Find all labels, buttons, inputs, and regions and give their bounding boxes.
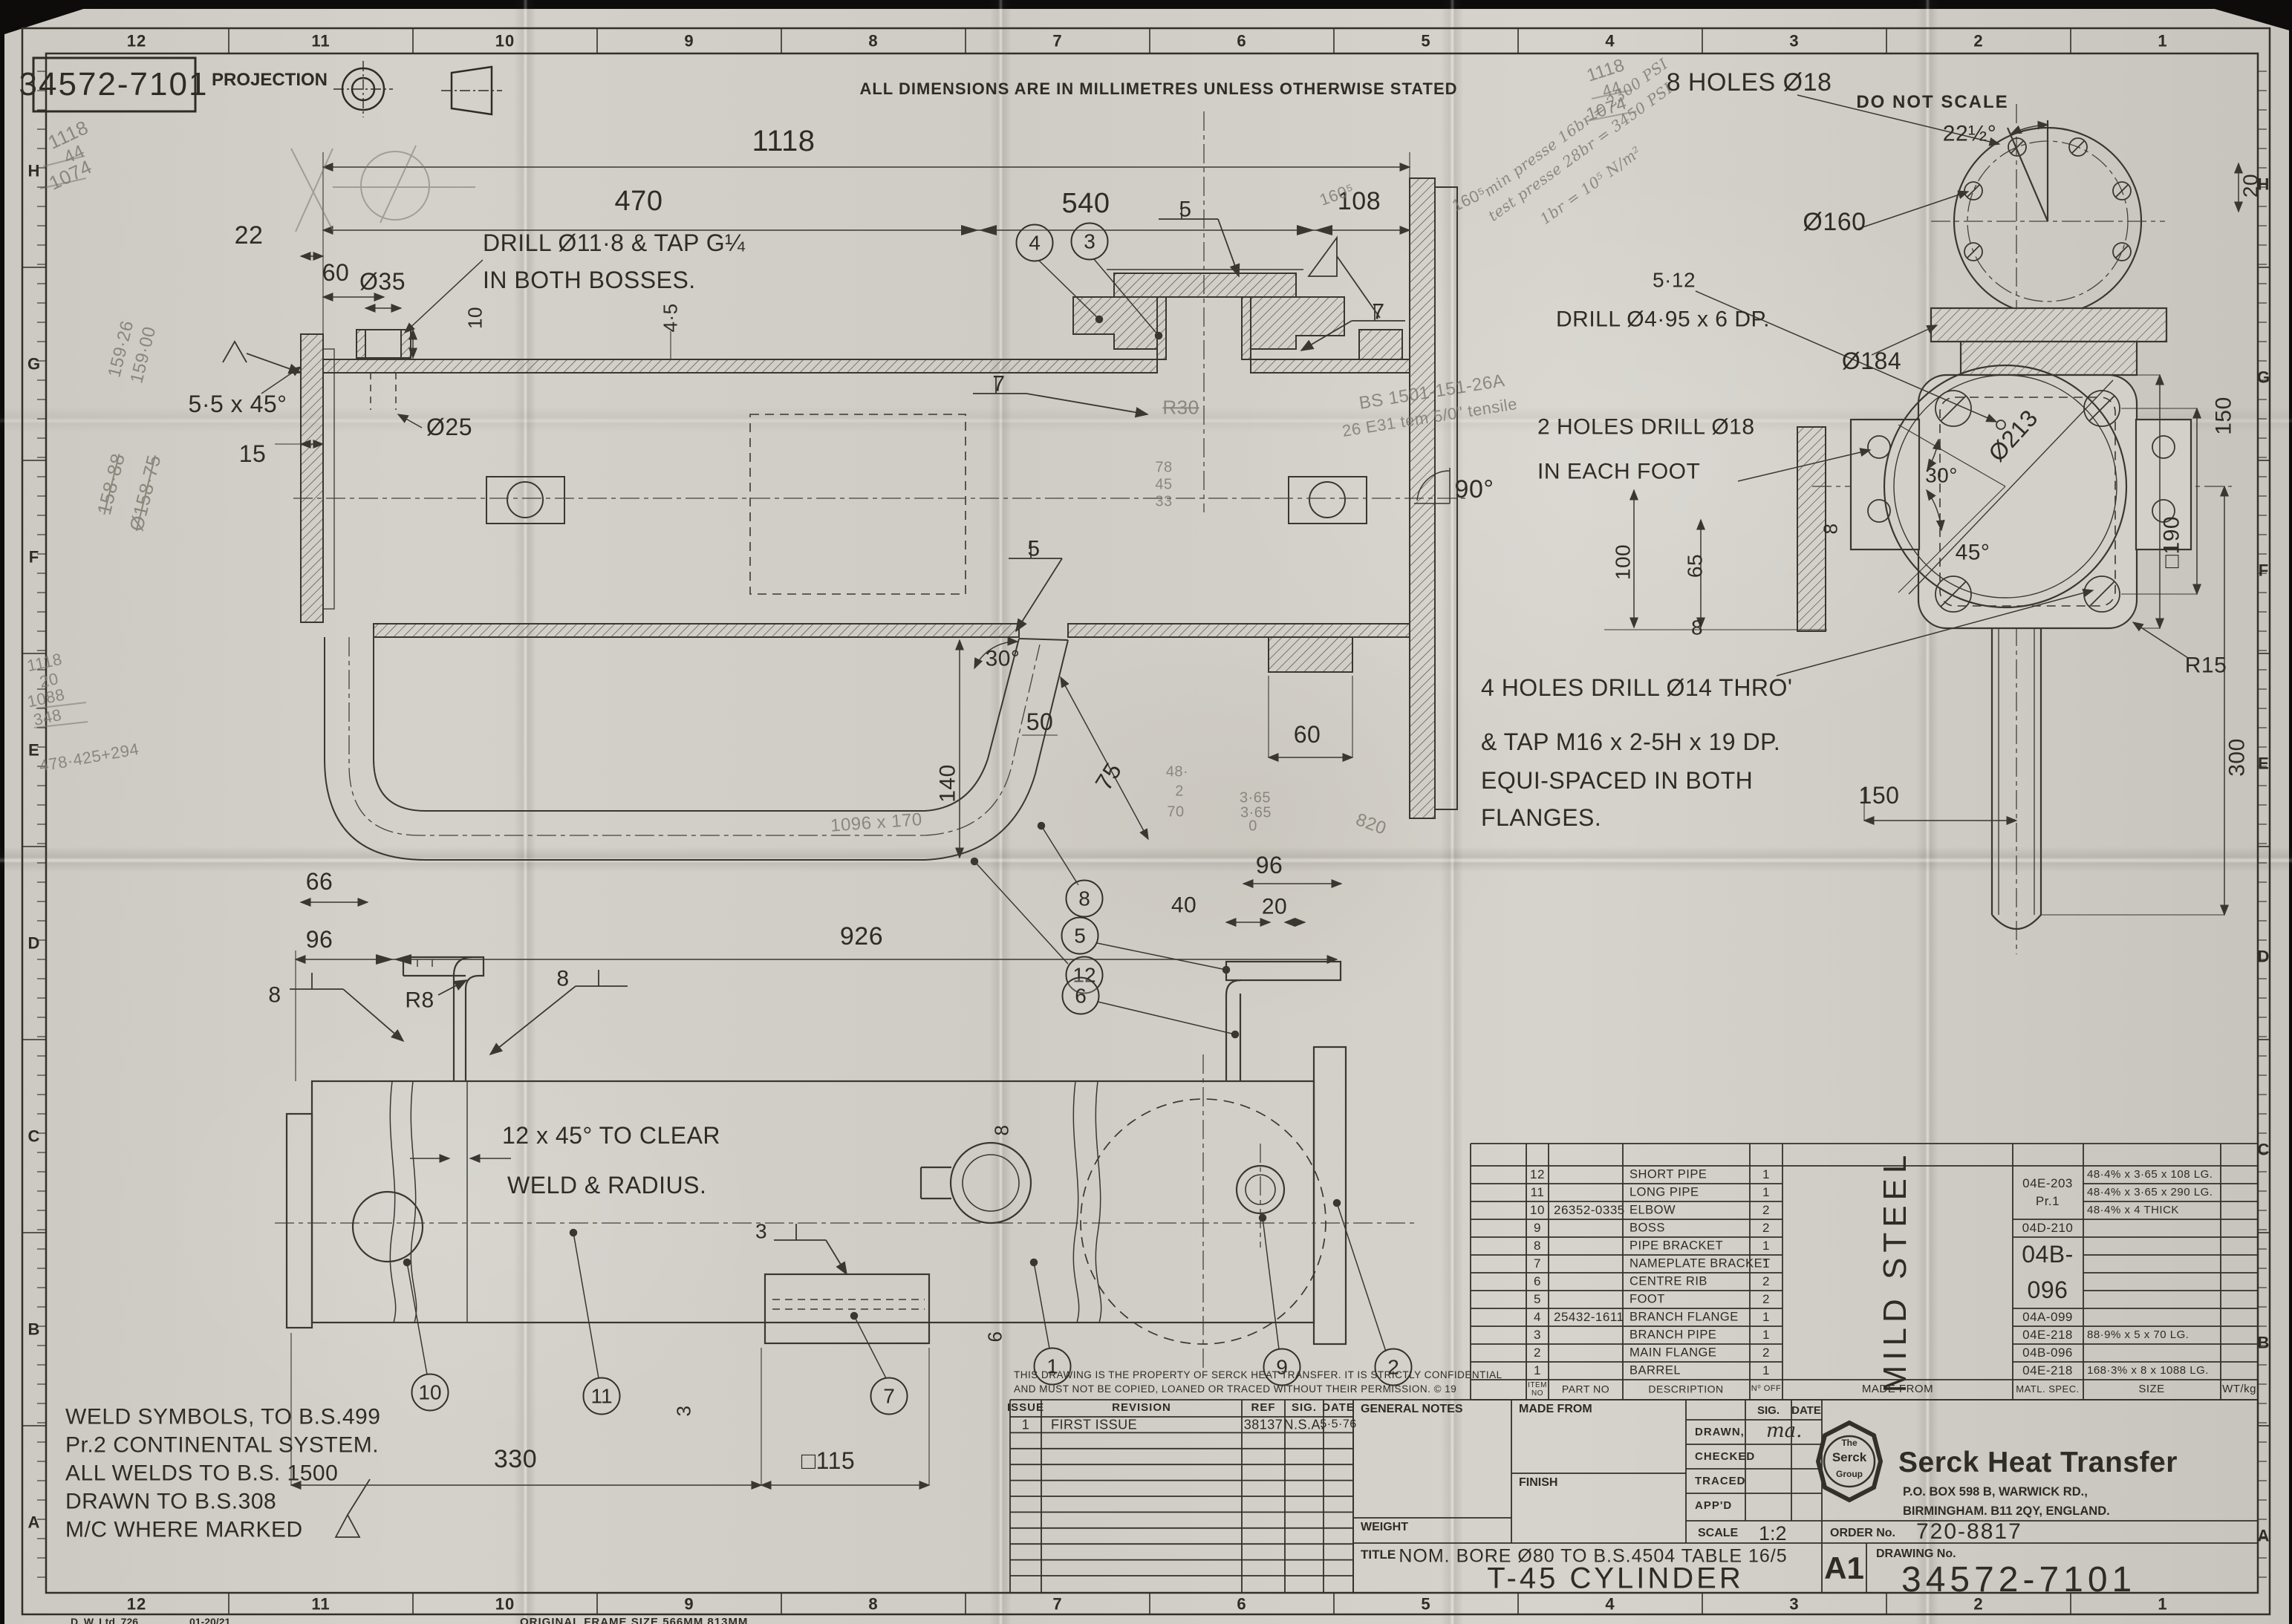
parts-description: BRANCH PIPE — [1630, 1328, 1716, 1341]
parts-item-no: 8 — [1534, 1239, 1541, 1253]
grid-row-label-left: D — [28, 934, 41, 951]
parts-description: BRANCH FLANGE — [1630, 1311, 1739, 1323]
parts-size: 88·9% x 5 x 70 LG. — [2087, 1329, 2189, 1341]
item-balloon-7: 7 — [870, 1377, 908, 1415]
parts-matl-spec: 096 — [2028, 1278, 2068, 1303]
parts-header-off: N⁰ OFF — [1751, 1385, 1781, 1394]
dimension-text: 10 — [465, 307, 485, 329]
dimension-text: & TAP M16 x 2-5H x 19 DP. — [1481, 730, 1780, 755]
weld-note-line: DRAWN TO B.S.308 — [65, 1490, 276, 1513]
dimension-text: 65 — [1684, 554, 1705, 578]
grid-row-label-left: G — [27, 355, 41, 372]
grid-col-label-bottom: 10 — [495, 1595, 515, 1612]
dimension-text: 8 — [1691, 616, 1703, 638]
order-label: ORDER No. — [1830, 1527, 1895, 1540]
dimension-text: 22 — [235, 223, 264, 250]
item-balloon-8: 8 — [1066, 880, 1104, 918]
grid-col-label-bottom: 5 — [1421, 1595, 1430, 1612]
dimension-text: WELD & RADIUS. — [507, 1173, 706, 1199]
grid-col-label-top: 11 — [311, 32, 330, 49]
item-balloon-6: 6 — [1062, 977, 1100, 1015]
parts-item-no: 11 — [1531, 1186, 1545, 1199]
parts-matl-spec: 04E-218 — [2022, 1364, 2073, 1377]
parts-description: NAMEPLATE BRACKET — [1630, 1257, 1771, 1270]
grid-col-label-bottom: 9 — [684, 1595, 694, 1612]
parts-header-part: PART NO — [1562, 1384, 1609, 1395]
footer-maker: D. W. Ltd. 726 — [71, 1616, 138, 1624]
revision-text: FIRST ISSUE — [1051, 1418, 1137, 1432]
parts-description: FOOT — [1630, 1293, 1665, 1305]
revision-header: DATE — [1322, 1402, 1355, 1414]
grid-col-label-bottom: 12 — [127, 1595, 146, 1612]
revision-header: SIG. — [1292, 1402, 1317, 1414]
grid-col-label-bottom: 6 — [1237, 1595, 1246, 1612]
grid-col-label-bottom: 7 — [1052, 1595, 1062, 1612]
revision-issue: 1 — [1022, 1418, 1030, 1432]
dimension-text: 7 — [992, 372, 1005, 396]
grid-col-label-bottom: 4 — [1605, 1595, 1615, 1612]
pencil-note: 3·65 — [1240, 791, 1271, 806]
dimension-text: 150 — [2212, 397, 2236, 435]
drawing-number-top: 34572-7101 — [19, 66, 209, 103]
parts-description: BOSS — [1630, 1222, 1665, 1234]
revision-header: ISSUE — [1007, 1402, 1044, 1414]
parts-no-off: 2 — [1762, 1293, 1770, 1306]
item-balloon-4: 4 — [1016, 224, 1054, 262]
dimension-text: 4·5 — [660, 303, 680, 332]
sig-row-label: APP'D — [1695, 1500, 1732, 1512]
grid-row-label-right: B — [2258, 1334, 2270, 1351]
dimension-text: Ø25 — [426, 415, 472, 440]
made-from-label: MADE FROM — [1519, 1403, 1592, 1416]
parts-size: 48·4% x 3·65 x 290 LG. — [2087, 1187, 2213, 1199]
grid-row-label-left: C — [28, 1127, 41, 1144]
grid-row-label-left: B — [28, 1320, 41, 1337]
parts-matl-spec: 04A-099 — [2022, 1311, 2073, 1324]
dimension-text: 60 — [1294, 723, 1321, 748]
parts-item-no: 1 — [1534, 1364, 1541, 1377]
parts-matl-spec: 04B-096 — [2022, 1346, 2073, 1360]
dimension-text: 926 — [840, 924, 883, 950]
weld-note-line: ALL WELDS TO B.S. 1500 — [65, 1461, 338, 1485]
dimension-text: Ø184 — [1842, 349, 1901, 374]
parts-matl-spec: 04D-210 — [2022, 1222, 2074, 1235]
parts-header-made-from: MADE FROM — [1862, 1383, 1933, 1395]
parts-description: CENTRE RIB — [1630, 1275, 1707, 1288]
dimension-text: R8 — [405, 988, 434, 1012]
dimension-text: 8 HOLES Ø18 — [1667, 70, 1832, 97]
dimension-text: 3 — [674, 1406, 694, 1417]
dimension-text: 40 — [1171, 893, 1197, 917]
dimension-text: 5·5 x 45° — [189, 392, 287, 417]
weld-note-line: M/C WHERE MARKED — [65, 1518, 303, 1542]
parts-no-off: 1 — [1762, 1239, 1770, 1253]
revision-date: 5·5·76 — [1320, 1419, 1356, 1432]
sig-row-label: DRAWN, — [1695, 1426, 1745, 1438]
logo-text-group: Group — [1836, 1469, 1863, 1479]
grid-col-label-top: 2 — [1973, 32, 1983, 49]
projection-label: PROJECTION — [212, 70, 328, 91]
parts-matl-spec: 04E-203 — [2022, 1177, 2073, 1190]
pencil-note: 70 — [1167, 805, 1184, 821]
dimension-text: 15 — [239, 442, 267, 467]
grid-col-label-bottom: 3 — [1789, 1595, 1799, 1612]
parts-matl-spec: Pr.1 — [2036, 1195, 2060, 1208]
dimension-text: 5 — [1027, 537, 1040, 561]
parts-no-off: 1 — [1762, 1311, 1770, 1324]
company-address2: BIRMINGHAM. B11 2QY, ENGLAND. — [1903, 1504, 2110, 1519]
do-not-scale-note: DO NOT SCALE — [1856, 92, 2008, 113]
pencil-note: 33 — [1155, 495, 1172, 510]
dimension-text: 96 — [306, 927, 333, 953]
item-balloon-3: 3 — [1071, 223, 1109, 261]
dimension-text: □115 — [801, 1449, 855, 1474]
parts-description: ELBOW — [1630, 1204, 1676, 1216]
drawing-sheet-scan: 34572-7101 PROJECTION ALL DIMENSIONS ARE… — [0, 0, 2292, 1624]
parts-description: MAIN FLANGE — [1630, 1346, 1716, 1359]
parts-item-no: 2 — [1534, 1346, 1541, 1360]
made-from-material: MILD STEEL — [1878, 1150, 1912, 1393]
parts-item-no: 12 — [1530, 1168, 1545, 1181]
dimension-text: Ø160 — [1803, 209, 1866, 236]
dimension-text: IN EACH FOOT — [1537, 460, 1700, 483]
scale-label: SCALE — [1698, 1527, 1738, 1540]
grid-col-label-bottom: 8 — [868, 1595, 878, 1612]
order-number: 720-8817 — [1916, 1519, 2022, 1545]
parts-item-no: 5 — [1534, 1293, 1541, 1306]
parts-no-off: 1 — [1762, 1257, 1770, 1271]
revision-header: REVISION — [1112, 1402, 1171, 1414]
dimension-text: 8 — [556, 967, 569, 991]
sheet-size-code: A1 — [1824, 1550, 1864, 1586]
dimension-text: 96 — [1256, 853, 1283, 878]
footer-frame-size: ORIGINAL FRAME SIZE 566MM 813MM — [520, 1616, 748, 1624]
grid-col-label-top: 7 — [1052, 32, 1062, 49]
dimension-text: Ø35 — [359, 270, 406, 295]
parts-header-description: DESCRIPTION — [1648, 1384, 1723, 1395]
dimension-text: 300 — [2225, 738, 2249, 777]
dimension-text: 5·12 — [1653, 269, 1696, 290]
pencil-note: 0 — [1248, 819, 1257, 835]
parts-description: SHORT PIPE — [1630, 1168, 1707, 1181]
dimension-text: 540 — [1062, 189, 1110, 219]
parts-item-no: 3 — [1534, 1328, 1541, 1342]
item-balloon-5: 5 — [1061, 917, 1099, 955]
dimension-text: 6 — [985, 1331, 1005, 1343]
grid-row-label-left: A — [28, 1513, 41, 1530]
item-balloon-11: 11 — [583, 1377, 621, 1415]
title-label: TITLE — [1361, 1548, 1396, 1562]
parts-part-no: 26352-0335 — [1554, 1204, 1625, 1217]
parts-item-no: 7 — [1534, 1257, 1541, 1271]
title-line2: T-45 CYLINDER — [1487, 1562, 1743, 1596]
dimension-text: DRILL Ø4·95 x 6 DP. — [1556, 307, 1770, 331]
drawn-signature: ma. — [1766, 1420, 1802, 1442]
dimension-text: 150 — [1859, 783, 1900, 809]
parts-matl-spec: 04B- — [2022, 1242, 2074, 1268]
dimension-text: DRILL Ø11·8 & TAP G¼ — [483, 231, 745, 256]
dimension-text: 4 HOLES DRILL Ø14 THRO' — [1481, 676, 1793, 701]
company-address1: P.O. BOX 598 B, WARWICK RD., — [1903, 1485, 2088, 1499]
dimension-text: IN BOTH BOSSES. — [483, 268, 696, 293]
parts-size: 48·4% x 3·65 x 108 LG. — [2087, 1169, 2213, 1181]
weld-note-line: Pr.2 CONTINENTAL SYSTEM. — [65, 1433, 379, 1457]
parts-no-off: 1 — [1762, 1364, 1770, 1377]
parts-matl-spec: 04E-218 — [2022, 1328, 2073, 1342]
grid-col-label-bottom: 1 — [2158, 1595, 2167, 1612]
dimension-text: EQUI-SPACED IN BOTH — [1481, 769, 1753, 794]
general-notes-label: GENERAL NOTES — [1361, 1403, 1463, 1416]
parts-item-no: 6 — [1534, 1275, 1541, 1288]
dimension-text: 8 — [992, 1125, 1012, 1136]
dimension-text: 470 — [615, 187, 663, 217]
parts-header-wt: WT/kg — [2222, 1383, 2256, 1395]
dimension-text: 30° — [1925, 464, 1958, 486]
dimension-text: 8 — [1820, 524, 1840, 535]
grid-col-label-top: 8 — [868, 32, 878, 49]
grid-row-label-right: D — [2258, 948, 2270, 965]
grid-col-label-bottom: 11 — [311, 1595, 330, 1612]
pencil-note: R30 — [1162, 397, 1199, 417]
dimension-text: 90° — [1455, 477, 1494, 503]
parts-description: LONG PIPE — [1630, 1186, 1699, 1199]
revision-header: REF — [1251, 1402, 1276, 1414]
sig-header: SIG. — [1757, 1404, 1780, 1417]
dimension-text: 100 — [1612, 544, 1633, 580]
company-name: Serck Heat Transfer — [1898, 1447, 2178, 1479]
dimension-text: 66 — [306, 870, 333, 895]
grid-col-label-top: 12 — [127, 32, 146, 49]
dimension-text: 330 — [494, 1447, 537, 1473]
dimension-text: □190 — [2160, 516, 2184, 568]
logo-text-serck: Serck — [1832, 1450, 1866, 1465]
dimension-text: 140 — [936, 764, 960, 803]
parts-item-no: 4 — [1534, 1311, 1541, 1324]
dimension-text: 50 — [1026, 710, 1054, 735]
grid-row-label-right: G — [2257, 368, 2270, 385]
dimension-text: 7 — [1372, 300, 1384, 324]
weight-label: WEIGHT — [1361, 1521, 1408, 1534]
pencil-note: 78 — [1155, 460, 1172, 476]
parts-no-off: 1 — [1762, 1168, 1770, 1181]
parts-size: 168·3% x 8 x 1088 LG. — [2087, 1365, 2209, 1377]
pencil-note: 48· — [1166, 765, 1188, 780]
dimensions-note: ALL DIMENSIONS ARE IN MILLIMETRES UNLESS… — [859, 79, 1457, 99]
dimension-text: 2 HOLES DRILL Ø18 — [1537, 415, 1755, 439]
parts-no-off: 1 — [1762, 1328, 1770, 1342]
parts-no-off: 2 — [1762, 1204, 1770, 1217]
dimension-text: R15 — [2185, 653, 2227, 677]
footer-code: 01-20/21 — [189, 1616, 230, 1624]
confidential-note-line: THIS DRAWING IS THE PROPERTY OF SERCK HE… — [1014, 1370, 1503, 1380]
drawing-number: 34572-7101 — [1901, 1559, 2136, 1600]
grid-col-label-top: 9 — [684, 32, 694, 49]
dimension-text: 20 — [1262, 895, 1287, 919]
dimension-text: FLANGES. — [1481, 806, 1601, 831]
parts-no-off: 2 — [1762, 1275, 1770, 1288]
parts-item-no: 9 — [1534, 1222, 1541, 1235]
first-angle-projection-icon — [333, 61, 502, 117]
dimension-text: 5 — [1179, 198, 1191, 221]
logo-text-the: The — [1841, 1438, 1857, 1448]
parts-header-size: SIZE — [2138, 1383, 2164, 1395]
dimension-text: 8 — [268, 983, 281, 1007]
grid-col-label-top: 10 — [495, 32, 515, 49]
grid-col-label-top: 1 — [2158, 32, 2167, 49]
dimension-text: 60 — [322, 261, 350, 286]
parts-size: 48·4% x 4 THICK — [2087, 1204, 2179, 1216]
grid-col-label-top: 6 — [1237, 32, 1246, 49]
pencil-note: 45 — [1155, 477, 1172, 493]
dimension-text: 12 x 45° TO CLEAR — [502, 1124, 720, 1149]
grid-row-label-right: E — [2258, 754, 2270, 772]
parts-part-no: 25432-1611 — [1554, 1311, 1624, 1324]
parts-header-matl-spec: MATL. SPEC. — [2016, 1384, 2079, 1395]
sig-row-label: CHECKED — [1695, 1451, 1755, 1463]
dimension-text: 22½° — [1943, 122, 1996, 146]
date-header: DATE — [1791, 1404, 1821, 1417]
grid-row-label-right: C — [2258, 1141, 2270, 1158]
grid-col-label-top: 4 — [1605, 32, 1615, 49]
grid-row-label-left: E — [28, 741, 40, 758]
confidential-note-line: AND MUST NOT BE COPIED, LOANED OR TRACED… — [1014, 1384, 1456, 1395]
grid-col-label-top: 3 — [1789, 32, 1799, 49]
weld-note-line: WELD SYMBOLS, TO B.S.499 — [65, 1405, 380, 1429]
grid-row-label-right: H — [2258, 175, 2270, 192]
grid-col-label-bottom: 2 — [1973, 1595, 1983, 1612]
parts-header-item: ITEM NO — [1528, 1381, 1547, 1398]
parts-description: BARREL — [1630, 1364, 1681, 1377]
revision-ref: 38137 — [1244, 1418, 1283, 1432]
sig-row-label: TRACED — [1695, 1475, 1746, 1487]
grid-row-label-right: A — [2258, 1527, 2270, 1544]
grid-col-label-top: 5 — [1421, 32, 1430, 49]
dimension-text: 1118 — [752, 125, 815, 157]
scale-value: 1:2 — [1759, 1522, 1787, 1545]
parts-item-no: 10 — [1530, 1204, 1545, 1217]
parts-no-off: 2 — [1762, 1222, 1770, 1235]
grid-row-label-left: F — [29, 548, 39, 565]
dimension-text: 30° — [986, 647, 1020, 671]
pencil-note: 2 — [1175, 784, 1184, 800]
finish-label: FINISH — [1519, 1476, 1557, 1490]
dimension-text: 3 — [755, 1220, 767, 1242]
grid-row-label-left: H — [28, 162, 41, 179]
revision-sig: N.S.A. — [1283, 1418, 1324, 1432]
dimension-text: 45° — [1956, 541, 1990, 564]
grid-row-label-right: F — [2259, 561, 2269, 578]
item-balloon-10: 10 — [411, 1374, 449, 1412]
parts-description: PIPE BRACKET — [1630, 1239, 1723, 1252]
parts-no-off: 1 — [1762, 1186, 1770, 1199]
parts-no-off: 2 — [1762, 1346, 1770, 1360]
